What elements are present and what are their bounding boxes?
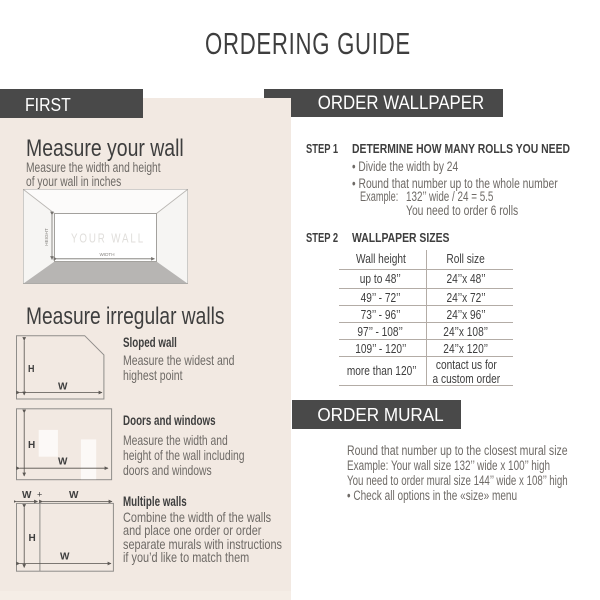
svg-text:W: W (22, 490, 32, 501)
svg-text:W: W (58, 382, 68, 393)
svg-text:H: H (28, 364, 35, 376)
svg-text:H: H (28, 440, 35, 451)
svg-text:HEIGHT: HEIGHT (44, 228, 49, 246)
svg-text:W: W (58, 457, 68, 468)
svg-text:+: + (37, 490, 42, 500)
svg-text:WIDTH: WIDTH (99, 252, 114, 257)
svg-text:W: W (69, 490, 79, 501)
svg-text:H: H (29, 533, 36, 544)
svg-text:YOUR WALL: YOUR WALL (71, 231, 145, 245)
svg-text:W: W (60, 552, 70, 563)
